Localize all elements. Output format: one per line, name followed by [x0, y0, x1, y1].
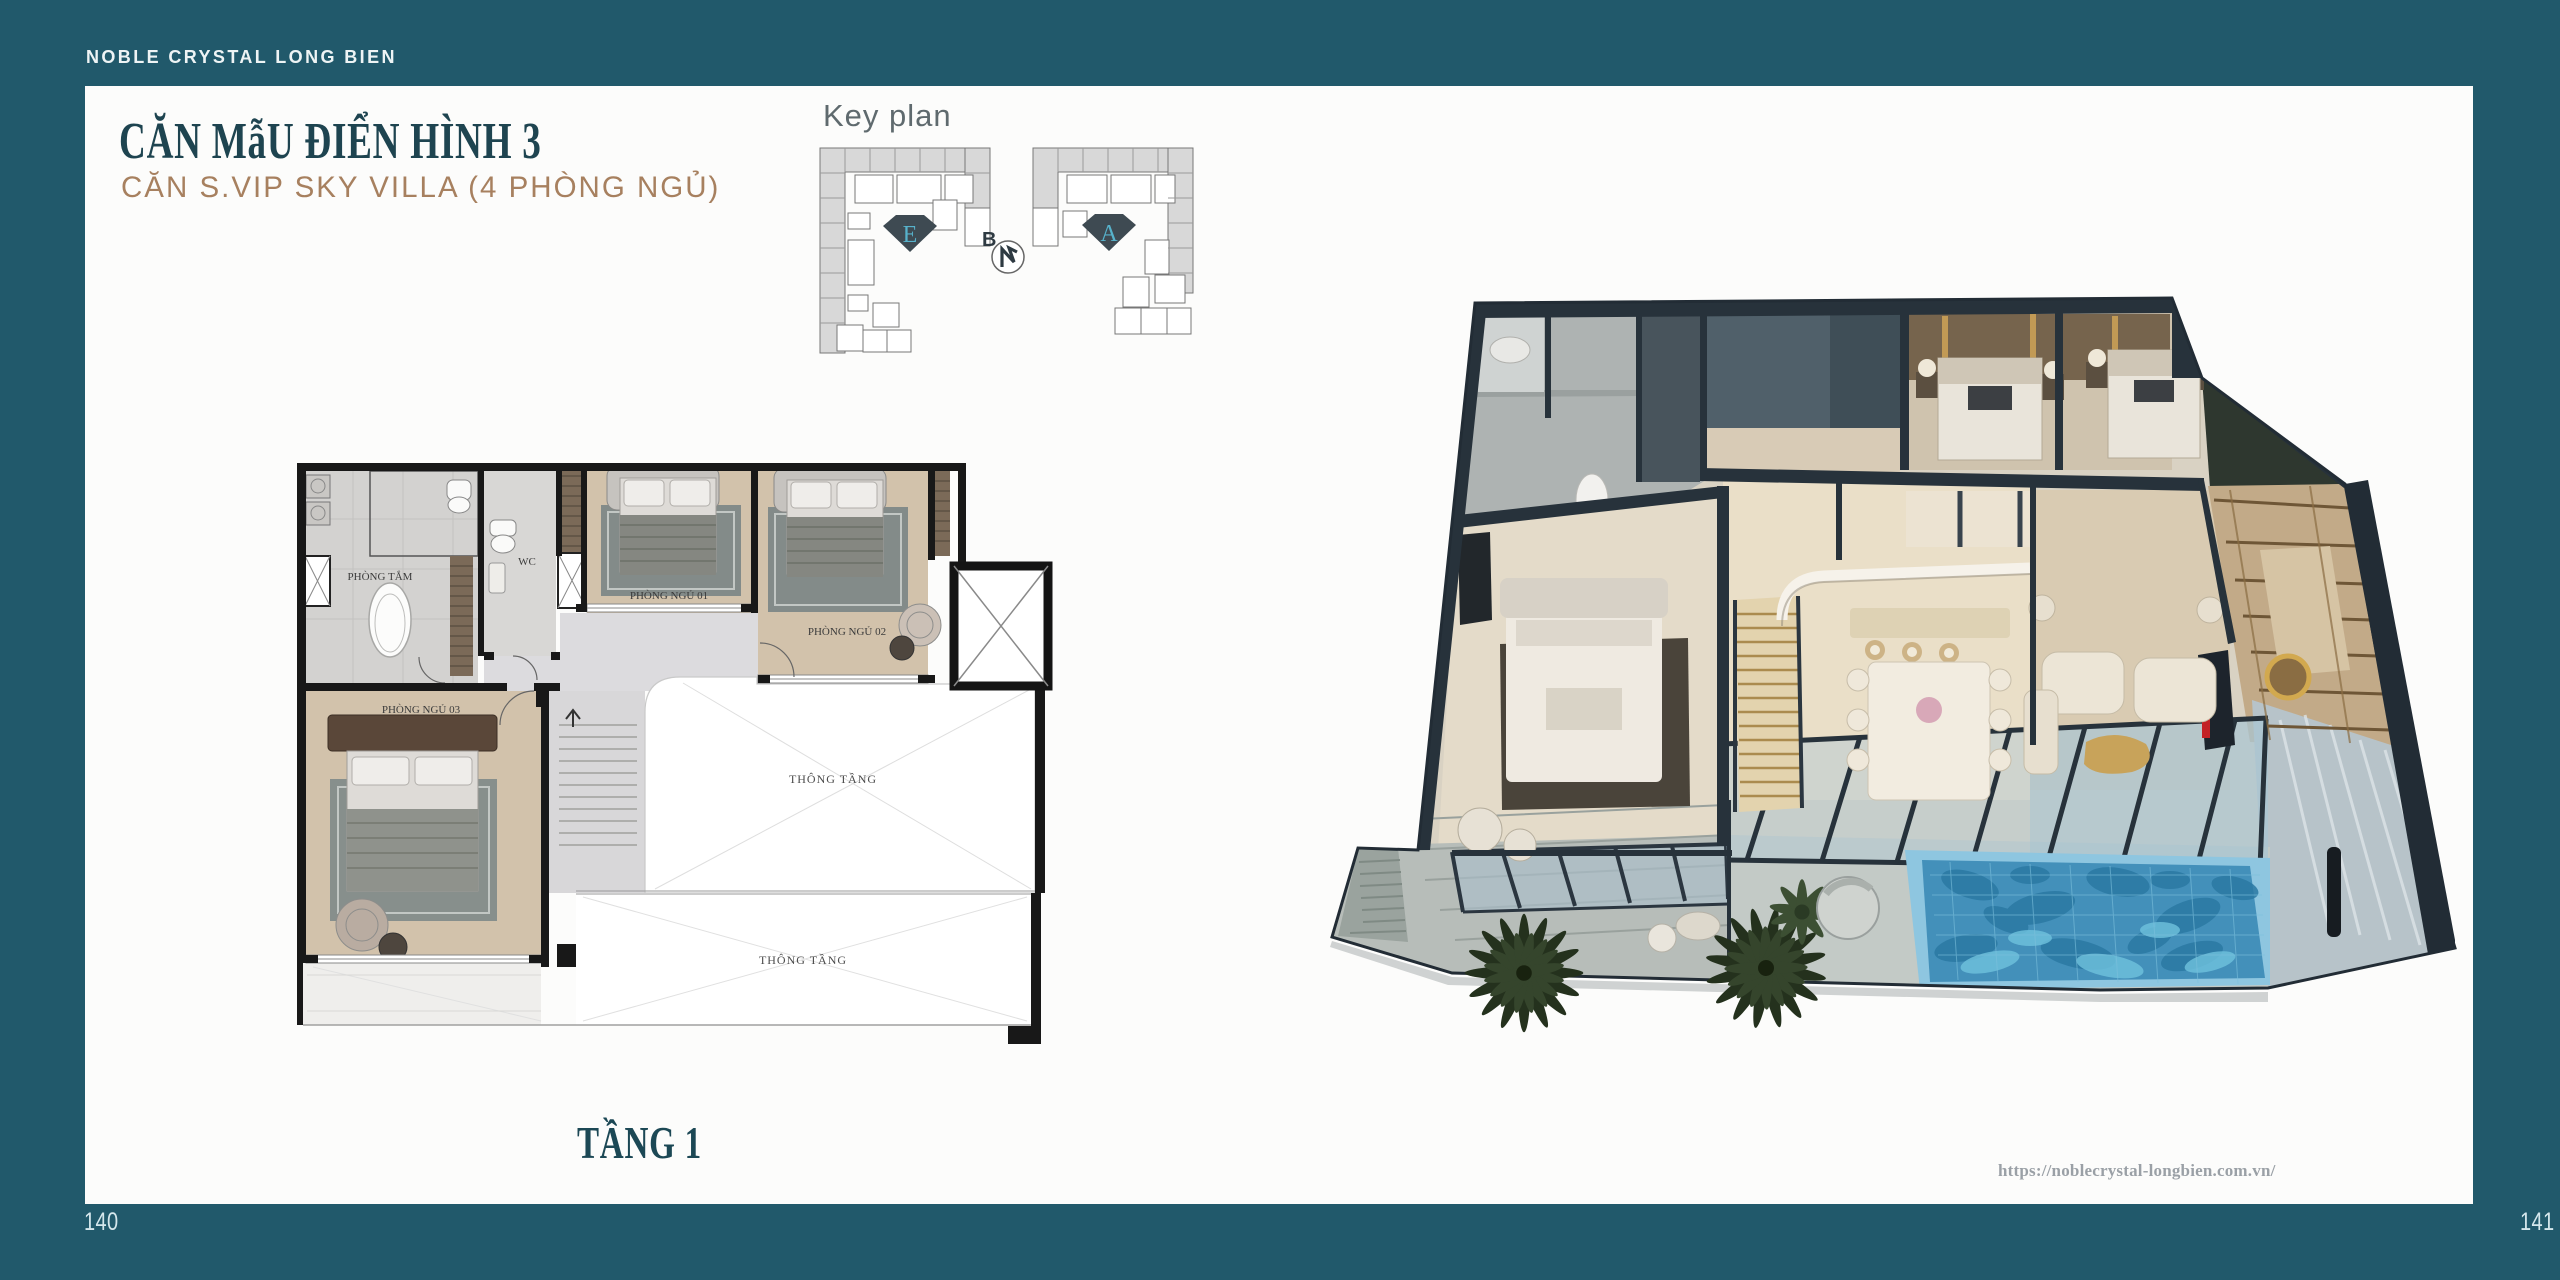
- svg-text:PHÒNG NGỦ 03: PHÒNG NGỦ 03: [382, 704, 461, 716]
- svg-text:WC: WC: [518, 556, 536, 568]
- svg-text:THÔNG TẦNG: THÔNG TẦNG: [789, 771, 877, 786]
- svg-text:THÔNG TẦNG: THÔNG TẦNG: [759, 952, 847, 967]
- svg-text:PHÒNG NGỦ 01: PHÒNG NGỦ 01: [630, 590, 708, 602]
- svg-text:A: A: [1100, 221, 1118, 247]
- svg-text:PHÒNG NGỦ 02: PHÒNG NGỦ 02: [808, 626, 886, 638]
- svg-text:E: E: [903, 222, 918, 248]
- svg-text:PHÒNG TẮM: PHÒNG TẮM: [348, 570, 413, 583]
